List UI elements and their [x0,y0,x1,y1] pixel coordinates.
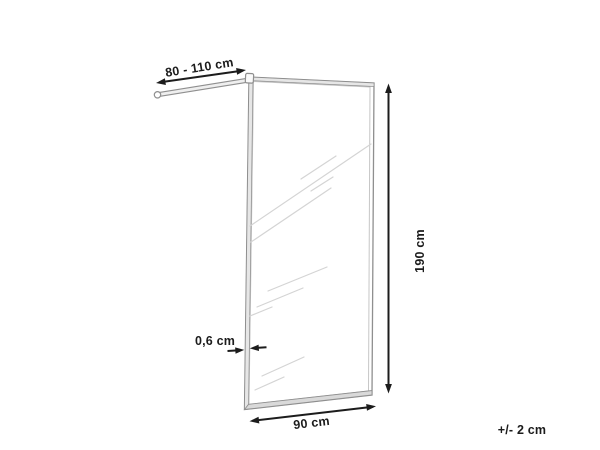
support-bar-tube-highlight [159,80,249,95]
arrowhead-icon [235,347,244,354]
arrowhead-icon [366,403,376,411]
width-label: 90 cm [293,414,331,432]
wall-mount-cap [154,92,160,98]
height-dimension: 190 cm [385,84,427,394]
arrowhead-icon [249,417,259,425]
arrowhead-icon [156,78,166,86]
arrowhead-icon [236,67,246,75]
glass-clamp-bracket [245,73,253,83]
arrowhead-icon [385,84,392,94]
panel-frame [245,77,375,410]
tolerance-label: +/- 2 cm [498,423,547,437]
shower-screen-dimension-diagram: 80 - 110 cm 190 cm 90 cm [0,0,600,450]
arrowhead-icon [385,384,392,394]
thickness-label: 0,6 cm [195,334,235,348]
panel-outer-frame [245,77,375,410]
height-label: 190 cm [413,229,427,273]
